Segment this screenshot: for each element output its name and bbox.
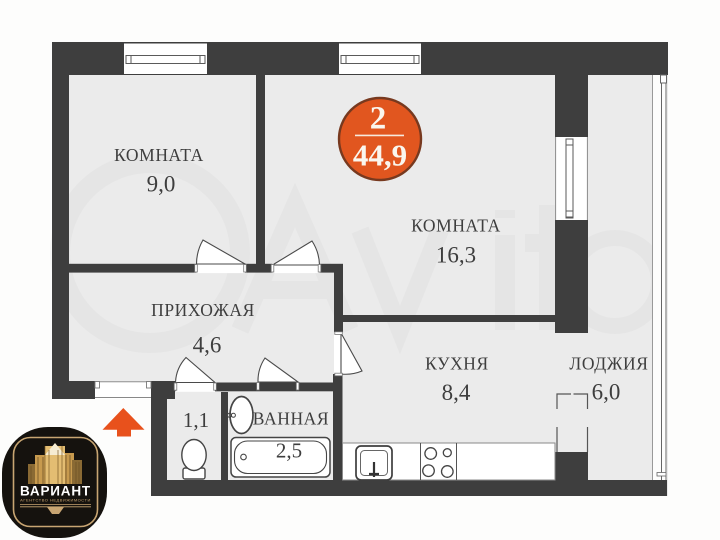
svg-text:КОМНАТА: КОМНАТА: [411, 216, 501, 236]
svg-text:ВАРИАНТ: ВАРИАНТ: [20, 484, 91, 499]
svg-text:9,0: 9,0: [147, 172, 176, 197]
svg-text:КУХНЯ: КУХНЯ: [425, 354, 489, 374]
svg-text:2: 2: [370, 101, 387, 137]
svg-text:1,1: 1,1: [183, 408, 209, 432]
svg-text:4,6: 4,6: [193, 333, 222, 358]
svg-text:16,3: 16,3: [436, 243, 476, 268]
svg-text:ПРИХОЖАЯ: ПРИХОЖАЯ: [151, 300, 255, 320]
svg-text:ВАННАЯ: ВАННАЯ: [253, 409, 329, 429]
svg-text:6,0: 6,0: [592, 380, 621, 405]
svg-text:8,4: 8,4: [442, 380, 471, 405]
svg-text:2,5: 2,5: [276, 439, 302, 463]
svg-text:КОМНАТА: КОМНАТА: [114, 145, 204, 165]
svg-text:44,9: 44,9: [353, 138, 407, 173]
svg-text:ЛОДЖИЯ: ЛОДЖИЯ: [569, 354, 648, 374]
svg-text:АГЕНТСТВО НЕДВИЖИМОСТИ: АГЕНТСТВО НЕДВИЖИМОСТИ: [20, 498, 91, 503]
